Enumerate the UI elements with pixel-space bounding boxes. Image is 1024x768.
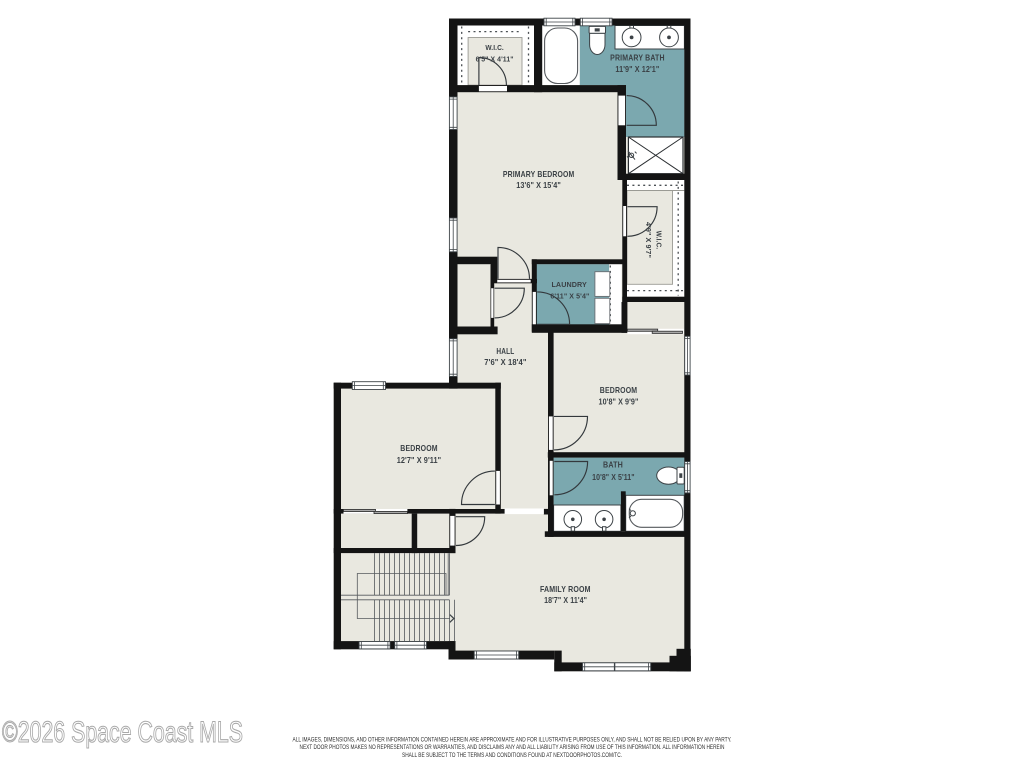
svg-text:18'7" X 11'4": 18'7" X 11'4" xyxy=(544,596,587,605)
svg-text:PRIMARY BATH: PRIMARY BATH xyxy=(610,53,665,63)
svg-text:©2026 Space Coast MLS: ©2026 Space Coast MLS xyxy=(2,716,243,749)
svg-text:13'6" X 15'4": 13'6" X 15'4" xyxy=(516,181,561,190)
svg-text:LAUNDRY: LAUNDRY xyxy=(551,280,587,289)
svg-text:W.I.C.: W.I.C. xyxy=(655,231,664,250)
svg-text:12'7" X 9'11": 12'7" X 9'11" xyxy=(397,456,442,465)
svg-text:BATH: BATH xyxy=(603,460,623,470)
svg-text:6'11" X 5'4": 6'11" X 5'4" xyxy=(550,291,589,300)
svg-text:PRIMARY BEDROOM: PRIMARY BEDROOM xyxy=(503,169,575,179)
svg-text:HALL: HALL xyxy=(496,346,514,356)
svg-text:SHALL BE SUBJECT TO THE TERMS: SHALL BE SUBJECT TO THE TERMS AND CONDIT… xyxy=(402,752,622,759)
svg-text:BEDROOM: BEDROOM xyxy=(600,385,638,395)
svg-text:10'8" X 9'9": 10'8" X 9'9" xyxy=(599,398,639,407)
svg-text:11'9" X 12'1": 11'9" X 12'1" xyxy=(615,65,659,74)
svg-text:7'6" X 18'4": 7'6" X 18'4" xyxy=(484,358,526,367)
svg-text:6'5" X 4'11": 6'5" X 4'11" xyxy=(476,55,514,64)
svg-text:W.I.C.: W.I.C. xyxy=(485,43,504,52)
svg-text:NEXT DOOR PHOTOS MAKES NO REPR: NEXT DOOR PHOTOS MAKES NO REPRESENTATION… xyxy=(300,744,725,751)
svg-text:ALL IMAGES, DIMENSIONS, AND OT: ALL IMAGES, DIMENSIONS, AND OTHER INFORM… xyxy=(293,737,732,744)
svg-text:4'9" X 9'7": 4'9" X 9'7" xyxy=(644,222,653,258)
svg-text:BEDROOM: BEDROOM xyxy=(400,443,438,453)
svg-text:10'8" X 5'11": 10'8" X 5'11" xyxy=(592,473,635,482)
svg-text:FAMILY ROOM: FAMILY ROOM xyxy=(540,584,591,594)
